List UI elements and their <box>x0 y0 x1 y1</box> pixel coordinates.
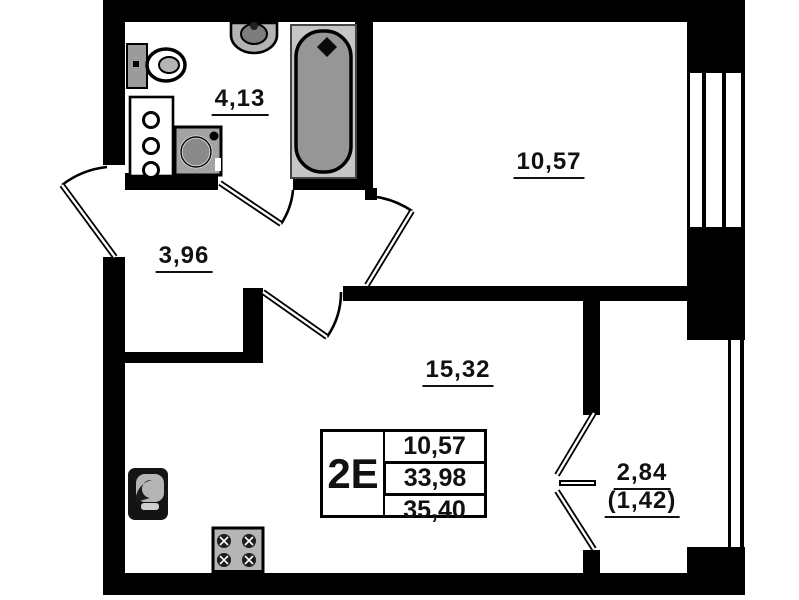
door-balcony-folding <box>557 413 596 549</box>
stamp-value-total-area: 35,40 <box>385 496 484 525</box>
room-area-label-hallway: 3,96 <box>156 242 213 273</box>
floor-plan: 4,13 10,57 3,96 15,32 2,84 (1,42) 2Е 10,… <box>0 0 799 600</box>
wall-segment <box>343 286 745 301</box>
wall-segment <box>687 0 745 73</box>
room-area-label-bathroom: 4,13 <box>212 85 269 116</box>
washing-machine-icon <box>175 127 221 175</box>
room-area-label-balcony-coefficient: (1,42) <box>605 487 680 518</box>
wall-segment <box>125 352 255 363</box>
stamp-value-living-area: 10,57 <box>385 432 484 461</box>
room-area-label-balcony: 2,84 <box>614 459 671 490</box>
wall-segment <box>365 188 377 200</box>
wall-segment <box>103 0 125 165</box>
room-area-value: 2,84 <box>614 459 671 490</box>
stove-icon <box>213 528 263 576</box>
room-area-value: 4,13 <box>212 85 269 116</box>
wall-segment <box>583 550 600 574</box>
bathtub-icon <box>291 25 356 178</box>
door-bathroom <box>220 183 293 224</box>
wall-segment <box>355 22 373 190</box>
unit-type-label: 2Е <box>323 432 385 515</box>
room-area-value: 3,96 <box>156 242 213 273</box>
unit-stamp: 2Е 10,57 33,98 35,40 <box>320 429 487 518</box>
cabinet-icon <box>130 97 173 178</box>
room-area-value: 15,32 <box>422 356 493 387</box>
wall-segment <box>103 0 745 22</box>
door-entrance <box>62 167 115 257</box>
wall-segment <box>243 288 263 363</box>
stamp-value-area: 33,98 <box>383 461 484 496</box>
wall-segment <box>103 573 745 595</box>
door-bedroom <box>367 197 412 285</box>
toilet-icon <box>127 44 185 88</box>
window-bedroom <box>687 73 745 227</box>
wall-segment <box>687 547 745 595</box>
wall-segment <box>103 257 125 595</box>
kitchen-sink-icon <box>128 468 168 520</box>
unit-stamp-values: 10,57 33,98 35,40 <box>385 432 484 515</box>
wall-segment <box>687 227 745 340</box>
sink-icon <box>231 22 277 53</box>
room-area-label-bedroom: 10,57 <box>513 148 584 179</box>
door-kitchen <box>263 292 341 337</box>
room-area-value: 10,57 <box>513 148 584 179</box>
wall-segment <box>583 301 600 415</box>
room-area-value: (1,42) <box>605 487 680 518</box>
room-area-label-kitchen-living: 15,32 <box>422 356 493 387</box>
window-balcony <box>728 340 744 547</box>
